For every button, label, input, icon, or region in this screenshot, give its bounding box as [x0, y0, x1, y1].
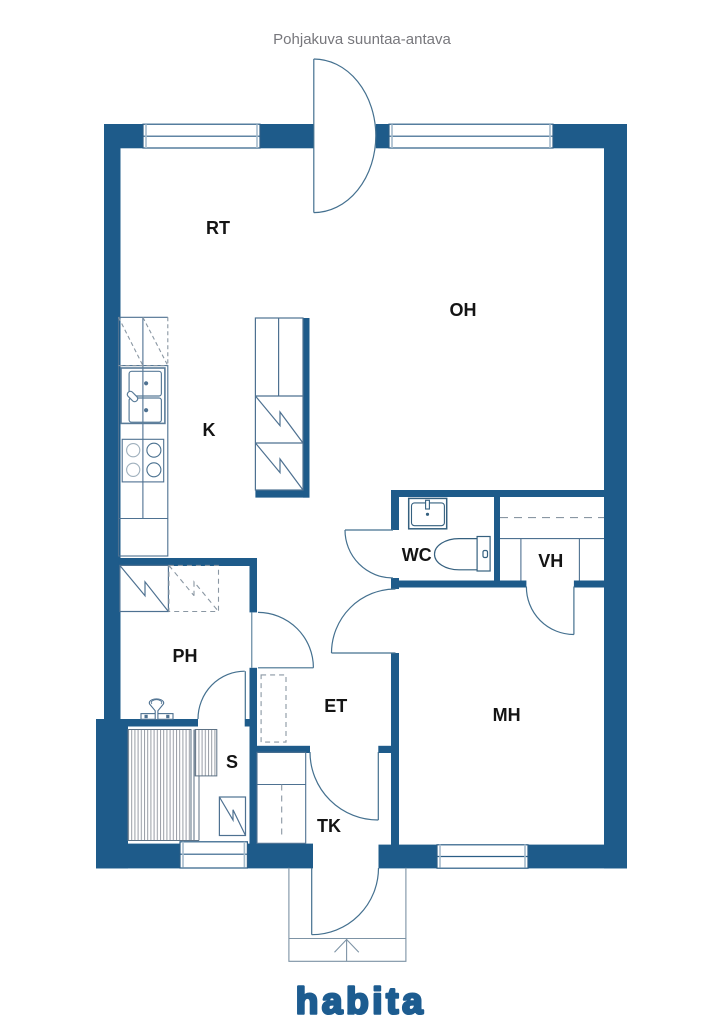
- svg-text:habita: habita: [296, 981, 427, 1022]
- svg-text:K: K: [203, 420, 216, 440]
- svg-text:MH: MH: [493, 705, 521, 725]
- svg-text:RT: RT: [206, 218, 230, 238]
- svg-text:S: S: [226, 752, 238, 772]
- svg-text:TK: TK: [317, 816, 341, 836]
- svg-text:VH: VH: [538, 551, 563, 571]
- svg-text:Pohjakuva suuntaa-antava: Pohjakuva suuntaa-antava: [273, 31, 451, 48]
- svg-text:OH: OH: [450, 300, 477, 320]
- svg-text:ET: ET: [324, 696, 347, 716]
- svg-text:PH: PH: [172, 646, 197, 666]
- svg-text:WC: WC: [402, 545, 432, 565]
